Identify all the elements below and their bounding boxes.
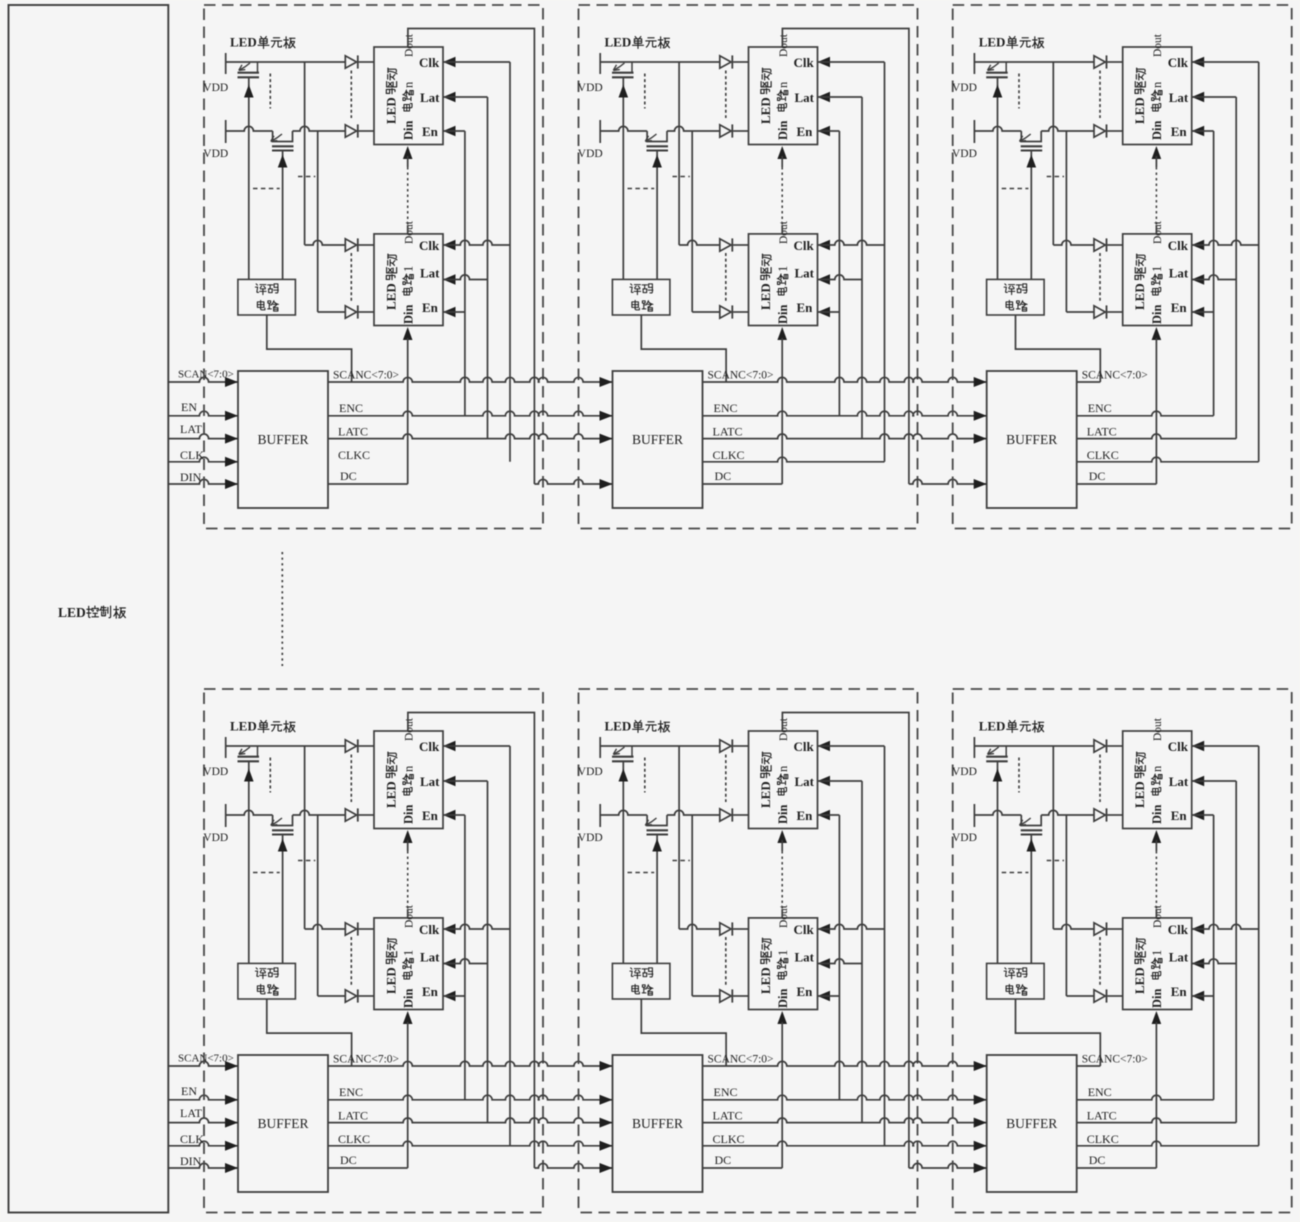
svg-text:En: En [1171,300,1188,315]
svg-text:LATC: LATC [713,1109,743,1123]
svg-text:LED: LED [384,283,399,310]
svg-text:LAT: LAT [180,1106,203,1120]
svg-text:Din: Din [1150,989,1164,1009]
svg-text:LAT: LAT [180,422,203,436]
svg-text:EN: EN [181,400,197,414]
svg-text:BUFFER: BUFFER [632,432,683,447]
svg-text:VDD: VDD [203,766,228,778]
svg-text:LATC: LATC [713,425,743,439]
svg-text:CLKC: CLKC [1087,448,1119,462]
svg-text:BUFFER: BUFFER [257,1116,308,1131]
svg-text:Din: Din [776,989,790,1009]
svg-text:Clk: Clk [419,922,440,937]
svg-text:SCANC<7:0>: SCANC<7:0> [333,1054,399,1066]
svg-text:VDD: VDD [952,82,977,94]
svg-text:Lat: Lat [795,266,815,281]
svg-text:1: 1 [776,266,790,272]
svg-text:En: En [422,124,439,139]
svg-text:ENC: ENC [714,1085,738,1099]
svg-text:LED: LED [758,967,773,994]
svg-text:En: En [1171,808,1188,823]
svg-text:LED: LED [384,967,399,994]
svg-text:Din: Din [1150,121,1164,141]
svg-text:LATC: LATC [338,1109,368,1123]
svg-text:EN: EN [181,1084,197,1098]
svg-text:DIN: DIN [180,470,202,484]
svg-text:En: En [1171,124,1188,139]
svg-text:Clk: Clk [794,55,815,70]
svg-text:Din: Din [776,305,790,325]
svg-text:VDD: VDD [203,148,228,160]
svg-text:Lat: Lat [420,950,440,965]
svg-text:En: En [797,300,814,315]
svg-text:Din: Din [402,121,416,141]
svg-text:CLKC: CLKC [713,448,745,462]
svg-text:CLKC: CLKC [713,1132,745,1146]
svg-text:ENC: ENC [1088,401,1112,415]
svg-text:CLKC: CLKC [1087,1132,1119,1146]
svg-text:DC: DC [1089,469,1106,483]
svg-text:SCANC<7:0>: SCANC<7:0> [333,370,399,382]
svg-text:Din: Din [402,305,416,325]
svg-text:VDD: VDD [578,832,603,844]
svg-text:LED: LED [1132,967,1147,994]
svg-text:n: n [776,765,790,772]
svg-text:SCANC<7:0>: SCANC<7:0> [708,1054,774,1066]
svg-text:VDD: VDD [952,148,977,160]
svg-text:1: 1 [402,950,416,956]
svg-text:1: 1 [776,950,790,956]
svg-text:ENC: ENC [339,1085,363,1099]
svg-text:En: En [422,984,439,999]
svg-text:Lat: Lat [420,266,440,281]
svg-text:ENC: ENC [714,401,738,415]
svg-text:Din: Din [402,989,416,1009]
svg-text:VDD: VDD [203,832,228,844]
svg-text:VDD: VDD [578,766,603,778]
svg-text:VDD: VDD [952,766,977,778]
svg-text:Dout: Dout [404,33,416,57]
svg-text:DIN: DIN [180,1154,202,1168]
svg-text:Clk: Clk [794,739,815,754]
svg-text:Din: Din [1150,805,1164,825]
svg-text:n: n [402,765,416,772]
svg-text:Dout: Dout [404,220,416,244]
svg-text:VDD: VDD [952,832,977,844]
svg-text:LED: LED [758,283,773,310]
svg-text:SCANC<7:0>: SCANC<7:0> [1082,1054,1148,1066]
svg-text:1: 1 [1150,950,1164,956]
svg-text:BUFFER: BUFFER [632,1116,683,1131]
svg-text:1: 1 [1150,266,1164,272]
svg-text:Din: Din [776,805,790,825]
svg-text:Lat: Lat [1169,950,1189,965]
svg-text:Din: Din [402,805,416,825]
svg-text:LATC: LATC [1087,1109,1117,1123]
svg-text:CLKC: CLKC [338,448,370,462]
svg-text:Dout: Dout [404,904,416,928]
svg-text:DC: DC [715,469,732,483]
svg-text:En: En [422,300,439,315]
svg-text:LED: LED [979,719,1006,734]
svg-text:Din: Din [1150,305,1164,325]
svg-text:Lat: Lat [795,774,815,789]
svg-text:LED: LED [1132,283,1147,310]
svg-text:Lat: Lat [795,90,815,105]
svg-text:Dout: Dout [1152,717,1164,741]
svg-text:DC: DC [1089,1153,1106,1167]
svg-text:BUFFER: BUFFER [1006,1116,1057,1131]
svg-text:BUFFER: BUFFER [1006,432,1057,447]
svg-text:Lat: Lat [1169,774,1189,789]
svg-text:Dout: Dout [1152,33,1164,57]
svg-text:n: n [1150,81,1164,88]
svg-text:LED: LED [758,97,773,124]
svg-text:Lat: Lat [1169,266,1189,281]
svg-text:En: En [797,808,814,823]
svg-text:CLK: CLK [180,1132,204,1146]
svg-text:LED: LED [979,35,1006,50]
svg-text:Dout: Dout [778,33,790,57]
svg-text:Clk: Clk [794,238,815,253]
svg-text:Clk: Clk [1168,922,1189,937]
svg-text:DC: DC [340,1153,357,1167]
svg-text:En: En [422,808,439,823]
svg-text:LATC: LATC [1087,425,1117,439]
svg-text:En: En [1171,984,1188,999]
svg-text:LED: LED [1132,781,1147,808]
svg-text:CLK: CLK [180,448,204,462]
svg-text:n: n [776,81,790,88]
svg-text:Clk: Clk [419,739,440,754]
svg-text:Clk: Clk [419,55,440,70]
svg-text:ENC: ENC [1088,1085,1112,1099]
svg-text:Lat: Lat [420,774,440,789]
svg-text:ENC: ENC [339,401,363,415]
svg-text:DC: DC [340,469,357,483]
svg-text:LED: LED [1132,97,1147,124]
svg-text:n: n [402,81,416,88]
svg-text:Din: Din [776,121,790,141]
svg-text:CLKC: CLKC [338,1132,370,1146]
svg-text:VDD: VDD [578,82,603,94]
svg-text:n: n [1150,765,1164,772]
svg-text:VDD: VDD [578,148,603,160]
svg-text:BUFFER: BUFFER [257,432,308,447]
svg-text:LED: LED [230,35,257,50]
svg-text:En: En [797,984,814,999]
svg-text:DC: DC [715,1153,732,1167]
svg-text:SCANC<7:0>: SCANC<7:0> [1082,370,1148,382]
svg-text:Clk: Clk [1168,238,1189,253]
svg-text:Lat: Lat [420,90,440,105]
svg-text:LED: LED [384,781,399,808]
svg-text:LED: LED [605,719,632,734]
svg-text:VDD: VDD [203,82,228,94]
svg-text:Lat: Lat [1169,90,1189,105]
svg-text:Dout: Dout [1152,220,1164,244]
svg-text:Lat: Lat [795,950,815,965]
svg-text:En: En [797,124,814,139]
svg-text:LATC: LATC [338,425,368,439]
svg-text:Dout: Dout [404,717,416,741]
svg-text:Dout: Dout [1152,904,1164,928]
svg-text:LED: LED [230,719,257,734]
svg-text:Clk: Clk [1168,55,1189,70]
svg-text:LED: LED [384,97,399,124]
svg-text:Dout: Dout [778,220,790,244]
svg-text:Dout: Dout [778,904,790,928]
svg-text:LED: LED [58,605,86,620]
svg-text:Dout: Dout [778,717,790,741]
svg-text:Clk: Clk [794,922,815,937]
svg-text:LED: LED [758,781,773,808]
svg-text:Clk: Clk [1168,739,1189,754]
svg-text:1: 1 [402,266,416,272]
svg-text:Clk: Clk [419,238,440,253]
svg-text:SCANC<7:0>: SCANC<7:0> [708,370,774,382]
svg-text:LED: LED [605,35,632,50]
